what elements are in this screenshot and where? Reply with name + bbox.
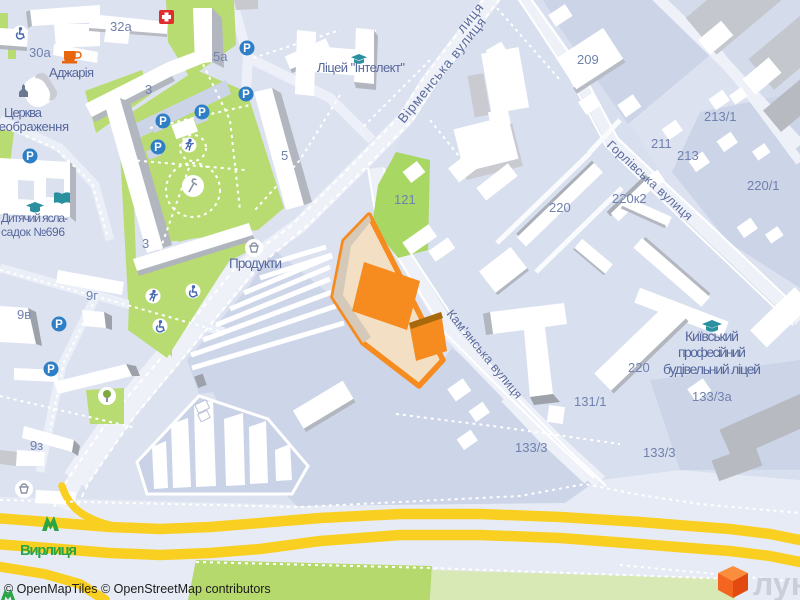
- svg-text:Ліцей "Інтелект": Ліцей "Інтелект": [317, 60, 405, 75]
- svg-text:Церква: Церква: [4, 105, 43, 120]
- svg-text:133/3a: 133/3a: [692, 389, 733, 404]
- svg-text:садок №696: садок №696: [1, 225, 65, 239]
- svg-text:P: P: [154, 142, 162, 154]
- svg-text:220: 220: [549, 200, 571, 215]
- svg-text:P: P: [242, 89, 250, 101]
- svg-text:133/3: 133/3: [643, 445, 676, 460]
- svg-text:P: P: [159, 116, 167, 128]
- svg-text:© OpenMapTiles © OpenStreetMap: © OpenMapTiles © OpenStreetMap contribut…: [4, 582, 271, 596]
- svg-text:P: P: [26, 151, 34, 163]
- svg-text:5a: 5a: [213, 49, 228, 64]
- svg-text:131/1: 131/1: [574, 394, 607, 409]
- svg-text:9в: 9в: [17, 307, 31, 322]
- svg-text:Дитячий ясла-: Дитячий ясла-: [1, 211, 68, 225]
- svg-text:Преображення: Преображення: [0, 119, 69, 134]
- svg-text:9з: 9з: [30, 438, 43, 453]
- svg-text:213: 213: [677, 148, 699, 163]
- svg-text:3: 3: [142, 236, 149, 251]
- svg-text:професійний: професійний: [678, 344, 746, 360]
- svg-text:будівельний ліцей: будівельний ліцей: [663, 361, 761, 377]
- svg-text:220/1: 220/1: [747, 178, 780, 193]
- svg-text:211: 211: [651, 136, 672, 151]
- svg-text:Київський: Київський: [685, 328, 739, 344]
- svg-text:Вирлиця: Вирлиця: [20, 542, 77, 559]
- svg-text:220к2: 220к2: [612, 191, 647, 206]
- svg-text:133/3: 133/3: [515, 440, 548, 455]
- svg-text:209: 209: [577, 52, 599, 67]
- svg-text:121: 121: [394, 192, 416, 207]
- svg-text:9г: 9г: [86, 288, 98, 303]
- svg-text:32a: 32a: [110, 19, 132, 34]
- svg-text:3: 3: [145, 82, 152, 97]
- svg-text:лун: лун: [753, 566, 800, 600]
- svg-text:Продукти: Продукти: [229, 256, 282, 271]
- svg-text:P: P: [55, 319, 63, 331]
- svg-text:30a: 30a: [29, 45, 51, 60]
- svg-text:5: 5: [281, 148, 288, 163]
- svg-text:P: P: [198, 107, 206, 119]
- svg-text:213/1: 213/1: [704, 109, 737, 124]
- svg-text:P: P: [47, 364, 55, 376]
- svg-text:220: 220: [628, 360, 650, 375]
- svg-text:Аджарія: Аджарія: [49, 65, 94, 80]
- svg-text:P: P: [243, 43, 251, 55]
